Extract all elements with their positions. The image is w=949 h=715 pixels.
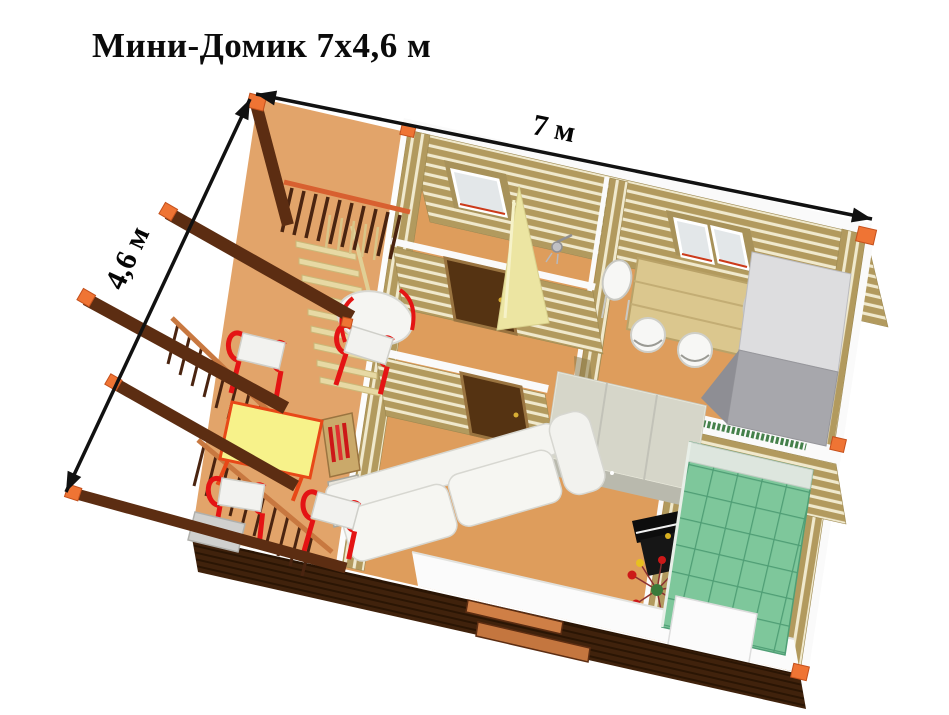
- depth-label: 4,6 м: [99, 221, 157, 294]
- dining-stool-2: [678, 333, 712, 367]
- floor-plan-page: 7 м 4,6 м Мини-Домик 7x4,6 м: [0, 0, 949, 715]
- width-label: 7 м: [530, 108, 579, 149]
- floor-plan-render: 7 м 4,6 м: [0, 0, 949, 715]
- page-title: Мини-Домик 7x4,6 м: [92, 26, 431, 66]
- dining-stool-1: [631, 318, 665, 352]
